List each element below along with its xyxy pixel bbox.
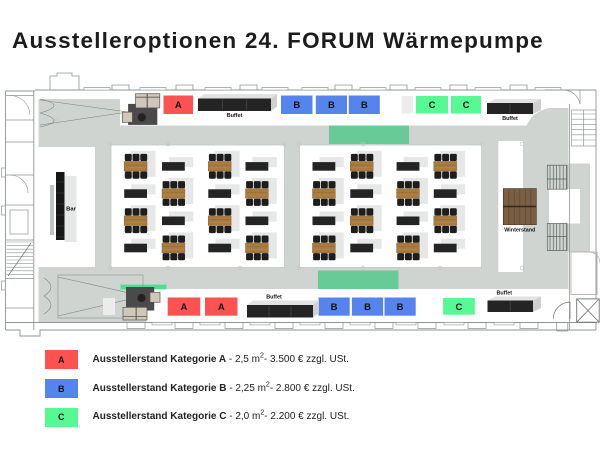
svg-text:Buffet: Buffet [227,113,243,119]
svg-text:B: B [293,100,300,111]
svg-text:Buffet: Buffet [266,294,282,300]
svg-text:B: B [328,100,335,111]
svg-text:A: A [181,302,188,313]
svg-text:Buffet: Buffet [502,116,518,122]
svg-text:B: B [364,302,371,313]
svg-text:Winterstand: Winterstand [504,228,535,234]
svg-text:Buffet: Buffet [496,290,512,296]
svg-text:C: C [429,100,436,111]
svg-text:B: B [397,302,404,313]
svg-text:B: B [361,100,368,111]
svg-text:Bar: Bar [66,207,76,213]
svg-text:A: A [218,302,225,313]
svg-text:B: B [331,302,338,313]
svg-text:A: A [175,100,182,111]
svg-text:C: C [463,100,470,111]
svg-text:C: C [456,302,463,313]
